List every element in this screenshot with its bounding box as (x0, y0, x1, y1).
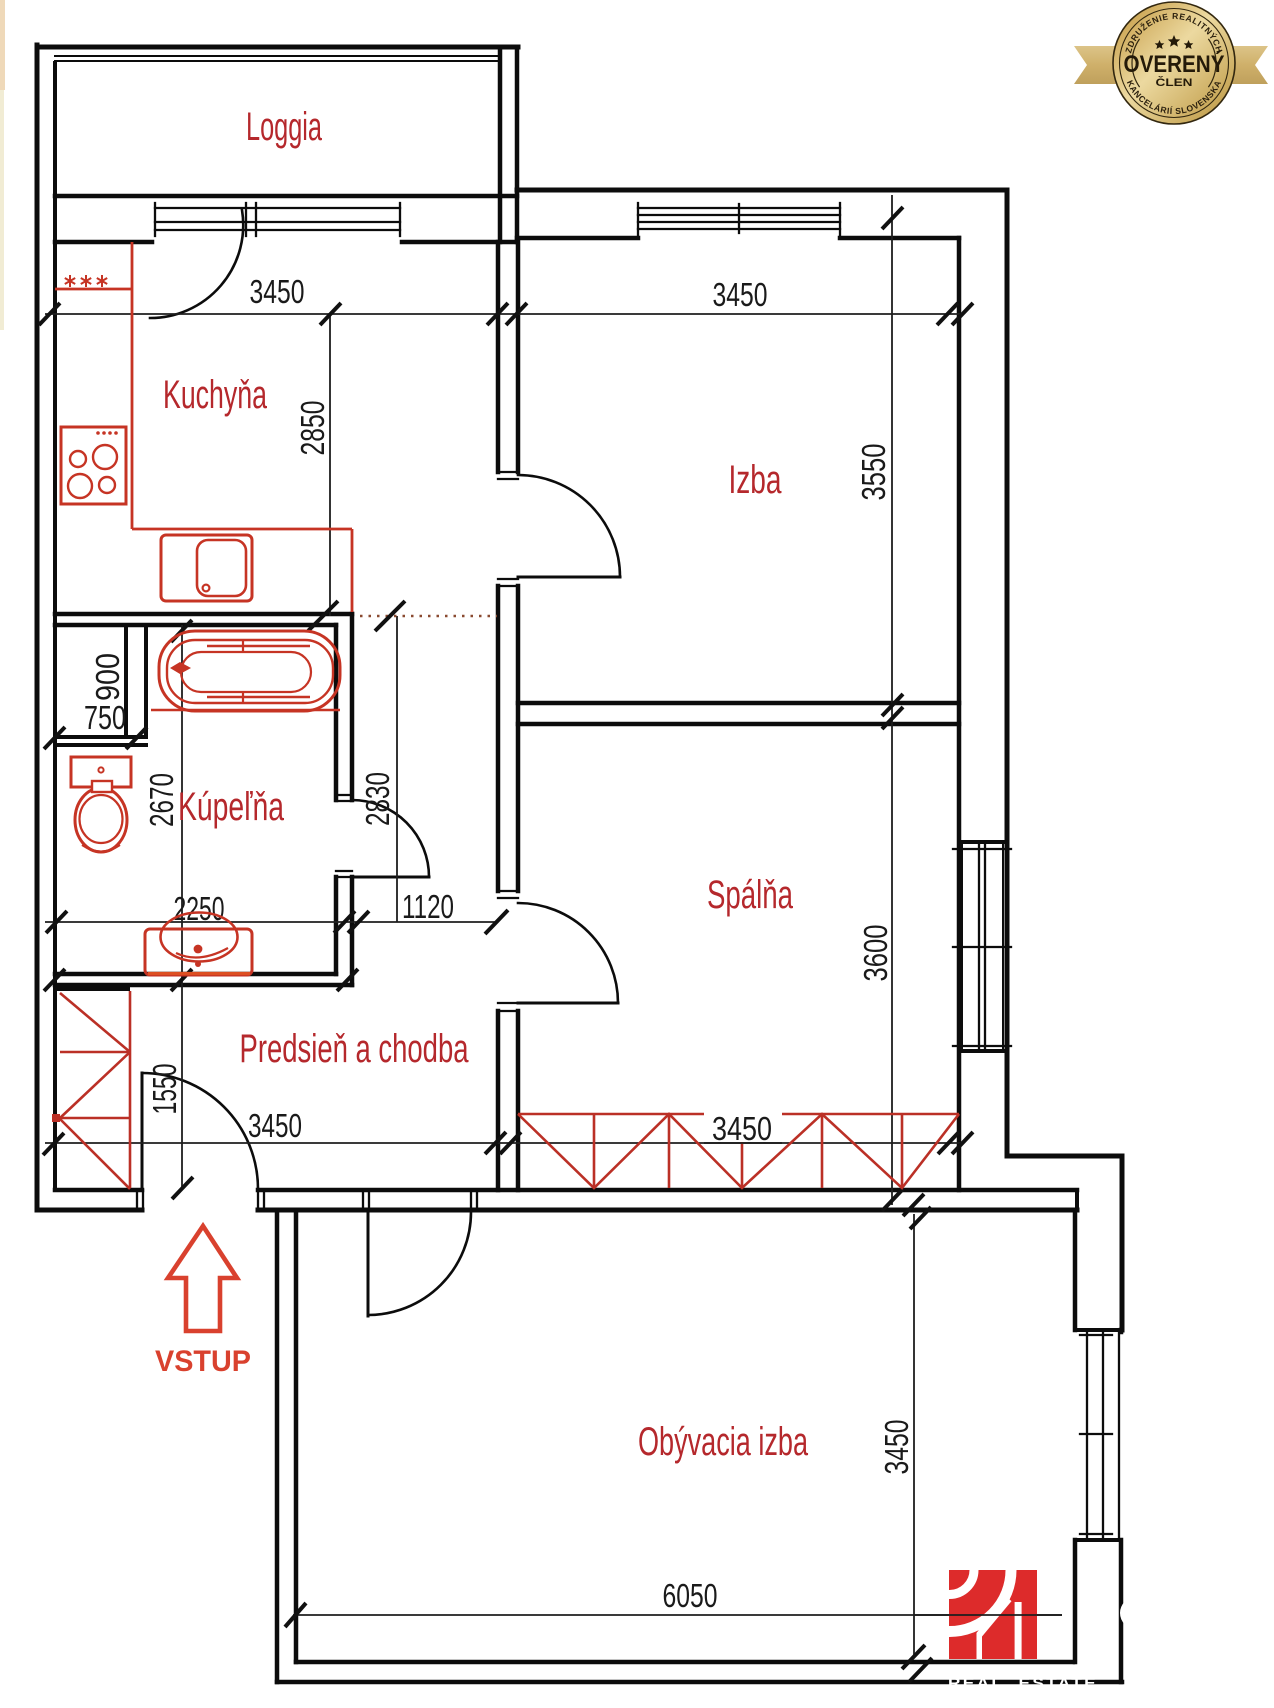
svg-text:750: 750 (84, 699, 126, 736)
svg-text:900: 900 (89, 653, 126, 701)
svg-text:Izba: Izba (729, 458, 783, 502)
svg-text:3600: 3600 (857, 925, 894, 982)
svg-text:Loggia: Loggia (246, 105, 322, 149)
svg-text:3450: 3450 (712, 1110, 772, 1147)
svg-text:Kúpeľňa: Kúpeľňa (178, 785, 285, 829)
svg-text:REAL ESTATE: REAL ESTATE (948, 1675, 1098, 1692)
svg-text:2830: 2830 (359, 772, 396, 826)
svg-text:VSTUP: VSTUP (155, 1345, 251, 1378)
svg-text:Predsieň a chodba: Predsieň a chodba (240, 1027, 470, 1071)
svg-text:1550: 1550 (146, 1064, 183, 1115)
svg-text:3450: 3450 (250, 273, 305, 310)
svg-text:6050: 6050 (663, 1577, 718, 1614)
svg-text:2670: 2670 (143, 773, 180, 827)
svg-text:2850: 2850 (294, 401, 331, 456)
svg-text:3450: 3450 (248, 1107, 302, 1144)
svg-text:1120: 1120 (402, 888, 454, 925)
svg-text:ČLEN: ČLEN (1156, 76, 1193, 89)
svg-text:Kuchyňa: Kuchyňa (163, 373, 267, 417)
svg-text:3450: 3450 (713, 276, 768, 313)
svg-text:OVERENÝ: OVERENÝ (1124, 50, 1225, 78)
svg-text:2250: 2250 (174, 890, 225, 927)
svg-text:Spálňa: Spálňa (707, 873, 794, 917)
svg-text:Obývacia izba: Obývacia izba (638, 1420, 809, 1464)
svg-text:3450: 3450 (878, 1420, 915, 1475)
svg-text:3550: 3550 (855, 444, 892, 501)
